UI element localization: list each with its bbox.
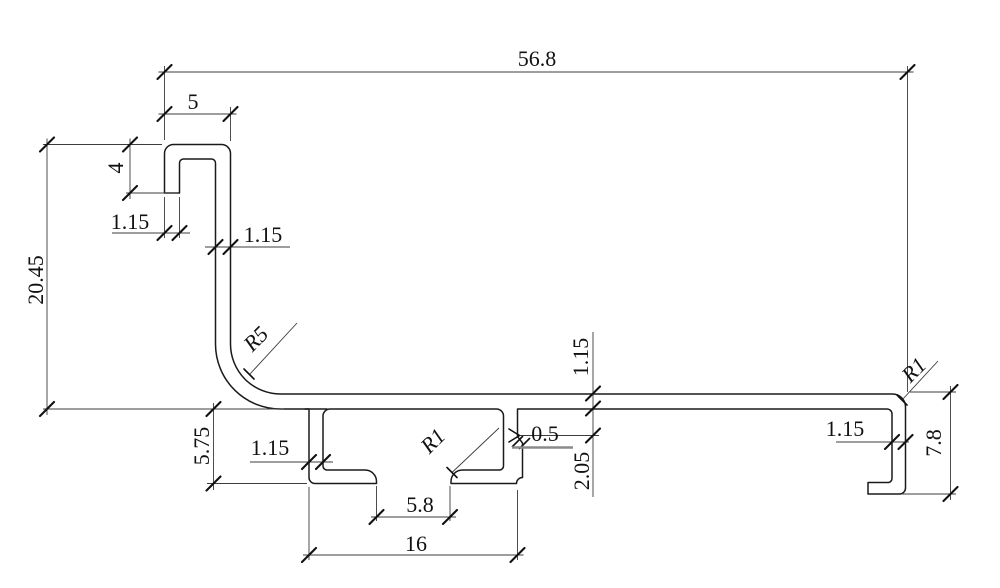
dim-end-leg-thickness-label: 1.15: [826, 416, 865, 441]
dim-overall-width-label: 56.8: [518, 46, 557, 71]
dim-channel-depth-label: 5.75: [189, 427, 214, 466]
dim-lip-step-label: 0.5: [531, 421, 559, 446]
dim-stem-thickness-label: 1.15: [244, 222, 283, 247]
dim-channel-outer-width-label: 16: [405, 531, 427, 556]
dim-end-height-label: 7.8: [921, 429, 946, 457]
drawing-background: [0, 0, 1000, 588]
dim-hook-leg-height-label: 4: [103, 163, 128, 174]
dim-web-thickness-label: 1.15: [568, 338, 593, 377]
dim-hook-lip-thickness-label: 1.15: [111, 209, 150, 234]
dim-lip-step-depth-label: 2.05: [569, 452, 594, 491]
profile-drawing: 56.8 5 4 1.15 1.15 20.45 R5 5.75 1.15 R1…: [0, 0, 1000, 588]
dim-overall-height-label: 20.45: [23, 255, 48, 305]
drawing-canvas: 56.8 5 4 1.15 1.15 20.45 R5 5.75 1.15 R1…: [0, 0, 1000, 588]
dim-toe-gap-width-label: 5.8: [406, 492, 434, 517]
dim-channel-wall-thickness-label: 1.15: [251, 435, 290, 460]
dim-hook-width-label: 5: [188, 89, 199, 114]
